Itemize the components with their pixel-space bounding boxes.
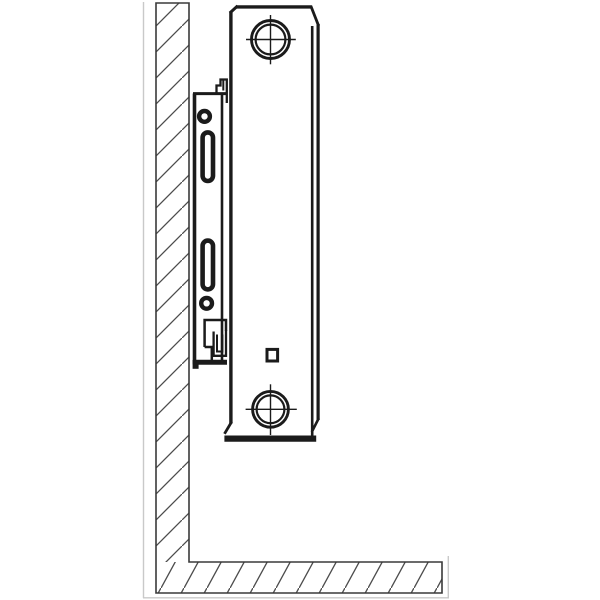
wall-outline [156, 3, 442, 593]
wall-floor-hatch [156, 562, 442, 593]
bracket-foot [193, 360, 199, 369]
bracket-upper-hole [199, 111, 210, 122]
bracket-bottom-clip-inner [217, 335, 222, 352]
radiator-panel [224, 7, 318, 439]
radiator-top-left-chamfer [231, 7, 237, 12]
radiator-top-right-chamfer [311, 7, 318, 25]
bracket-upper-slot [203, 132, 213, 181]
wall-section [156, 3, 442, 593]
radiator-bracket-diagram [0, 0, 600, 600]
radiator-vent-square [267, 349, 278, 361]
bracket-lower-hole [201, 298, 212, 309]
diagram-page [0, 0, 600, 600]
radiator-bottom-left-chamfer [225, 423, 231, 433]
bracket-lower-housing-step [205, 347, 212, 361]
bracket-lower-slot [203, 241, 213, 290]
wall-vertical-hatch [156, 3, 189, 562]
mounting-bracket [193, 80, 227, 369]
